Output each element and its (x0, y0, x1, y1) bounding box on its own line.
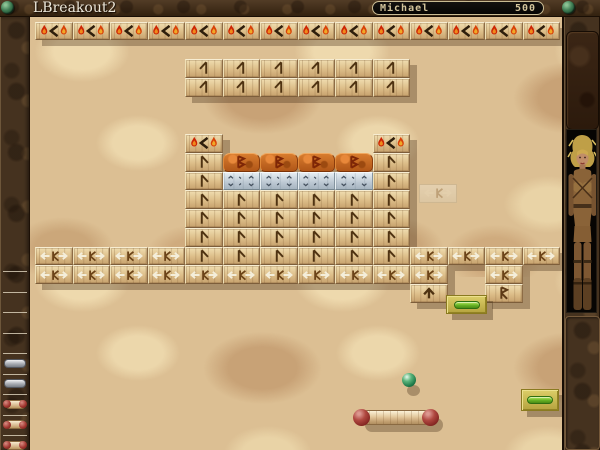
right-arrow-icon (442, 190, 450, 196)
brick-rune-laguz (260, 190, 298, 209)
brick-rune-laguz (260, 209, 298, 228)
chevron-left-icon (51, 26, 58, 36)
blonde-warrior-woman-art (567, 130, 597, 313)
rune-laguz-icon (389, 156, 395, 168)
flame-icon (378, 137, 384, 147)
chevron-left-icon (463, 26, 470, 36)
green-capsule-icon (527, 396, 553, 404)
left-arrow-icon (491, 253, 499, 259)
paddle-life-icon (3, 441, 27, 450)
item-slot (3, 292, 27, 312)
flame-icon (511, 25, 517, 35)
brick-rune-lambda (223, 59, 261, 78)
brick-ice (335, 172, 373, 191)
item-slot (3, 312, 27, 332)
score-panel: Michael 500 (372, 1, 544, 15)
brick-rune-laguz (298, 247, 336, 266)
rune-raido-icon (501, 288, 507, 300)
paddle-end-cap (353, 409, 370, 426)
score-value: 500 (515, 3, 536, 14)
chevron-left-icon (313, 26, 320, 36)
left-arrow-icon (425, 190, 433, 196)
brick-rune-laguz (335, 209, 373, 228)
rune-laguz-icon (352, 194, 358, 206)
rune-laguz-icon (277, 250, 283, 262)
brick-rune-lambda (223, 78, 261, 97)
up-arrow-icon (424, 289, 434, 298)
fading-brick (419, 184, 457, 203)
left-arrow-icon (229, 272, 237, 278)
silver-capsule-icon (4, 379, 26, 388)
rune-lambda-icon (275, 63, 281, 75)
brick-flame-chevron (373, 134, 411, 153)
brick-rune-laguz (185, 209, 223, 228)
ice-marks-icon (229, 176, 254, 185)
flame-icon (398, 137, 404, 147)
rune-k-icon (240, 270, 245, 279)
rune-k-icon (203, 270, 208, 279)
chevron-left-icon (201, 138, 208, 148)
rune-berkanan-icon (314, 156, 320, 168)
rune-k-icon (53, 251, 58, 260)
rune-laguz-icon (314, 231, 320, 243)
brick-rune-laguz (223, 190, 261, 209)
right-arrow-icon (433, 272, 441, 278)
brick-rune-laguz (185, 190, 223, 209)
right-arrow-icon (133, 272, 141, 278)
chevron-left-icon (538, 26, 545, 36)
flame-icon (191, 25, 197, 35)
brick-arrows-left-right-rune-k (35, 247, 73, 266)
item-slot (3, 271, 27, 291)
rune-berkanan-icon (276, 156, 282, 168)
rune-laguz-icon (239, 231, 245, 243)
rune-laguz-icon (389, 175, 395, 187)
rune-lambda-icon (312, 63, 318, 75)
brick-arrows-left-right-rune-k (298, 265, 336, 284)
rune-k-icon (390, 270, 395, 279)
rune-berkanan-icon (351, 156, 357, 168)
flame-icon (378, 25, 384, 35)
right-arrow-icon (283, 272, 291, 278)
rune-lambda-icon (350, 81, 356, 93)
rune-laguz-icon (239, 213, 245, 225)
leather-panel (565, 316, 600, 450)
rune-laguz-icon (202, 156, 208, 168)
rune-lambda-icon (237, 81, 243, 93)
rune-k-icon (503, 270, 508, 279)
brick-flame-chevron (73, 22, 111, 41)
left-arrow-icon (191, 272, 199, 278)
right-arrow-icon (358, 272, 366, 278)
rune-lambda-icon (387, 81, 393, 93)
brick-rune-laguz (298, 190, 336, 209)
brick-flame-chevron (335, 22, 373, 41)
brick-rune-lambda (298, 78, 336, 97)
brick-arrows-left-right-rune-k (485, 247, 523, 266)
brick-flame-chevron (35, 22, 73, 41)
brick-arrows-left-right-rune-k (73, 265, 111, 284)
brick-flame-chevron (410, 22, 448, 41)
rune-k-icon (503, 251, 508, 260)
item-slot (3, 353, 27, 373)
brick-rune-laguz (373, 172, 411, 191)
rune-laguz-icon (389, 194, 395, 206)
right-arrow-icon (208, 272, 216, 278)
rune-laguz-icon (202, 250, 208, 262)
left-arrow-icon (79, 253, 87, 259)
flame-icon (153, 25, 159, 35)
left-arrow-icon (266, 272, 274, 278)
rune-laguz-icon (389, 213, 395, 225)
rune-laguz-icon (277, 194, 283, 206)
brick-rune-laguz (185, 172, 223, 191)
rune-lambda-icon (275, 81, 281, 93)
paddle-life-icon (3, 400, 27, 409)
rune-berkanan-icon (239, 156, 245, 168)
brick-copper-rune-berkanan (298, 153, 336, 172)
left-arrow-icon (116, 272, 124, 278)
bonus-tile (446, 295, 487, 314)
brick-arrows-left-right-rune-k (35, 265, 73, 284)
flame-icon (323, 25, 329, 35)
flame-icon (416, 25, 422, 35)
rune-laguz-icon (314, 250, 320, 262)
right-sidebar (562, 17, 600, 450)
brick-arrows-left-right-rune-k (148, 247, 186, 266)
play-field[interactable] (30, 17, 562, 450)
brick-rune-laguz (373, 153, 411, 172)
left-sidebar (0, 17, 30, 450)
left-arrow-icon (379, 272, 387, 278)
brick-rune-laguz (373, 209, 411, 228)
chevron-left-icon (126, 26, 133, 36)
rune-lambda-icon (350, 63, 356, 75)
brick-rune-laguz (260, 247, 298, 266)
flame-icon (528, 25, 534, 35)
left-arrow-icon (116, 253, 124, 259)
brick-copper-rune-berkanan (260, 153, 298, 172)
gadget-panel (566, 31, 599, 130)
flame-icon (436, 25, 442, 35)
title-bar: LBreakout2 Michael 500 (0, 0, 600, 17)
chevron-left-icon (501, 26, 508, 36)
brick-arrows-left-right-rune-k (110, 265, 148, 284)
flame-icon (191, 137, 197, 147)
flame-icon (61, 25, 67, 35)
silver-capsule-icon (4, 359, 26, 368)
brick-flame-chevron (485, 22, 523, 41)
flame-icon (361, 25, 367, 35)
rune-k-icon (278, 270, 283, 279)
brick-arrows-left-right-rune-k (223, 265, 261, 284)
flame-icon (173, 25, 179, 35)
right-arrow-icon (508, 272, 516, 278)
left-arrow-icon (79, 272, 87, 278)
rune-k-icon (540, 251, 545, 260)
rune-laguz-icon (202, 213, 208, 225)
flame-icon (78, 25, 84, 35)
bonus-tile (521, 389, 559, 411)
brick-rune-laguz (185, 153, 223, 172)
item-slot (3, 415, 27, 435)
flame-icon (211, 137, 217, 147)
rune-k-icon (353, 270, 358, 279)
rune-laguz-icon (314, 213, 320, 225)
ice-marks-icon (341, 176, 366, 185)
chevron-left-icon (276, 26, 283, 36)
right-arrow-icon (396, 272, 404, 278)
flame-icon (286, 25, 292, 35)
brick-arrows-left-right-rune-k (410, 247, 448, 266)
flame-icon (116, 25, 122, 35)
chevron-left-icon (163, 26, 170, 36)
brick-rune-laguz (185, 247, 223, 266)
brick-arrow-up (410, 284, 448, 303)
flame-icon (491, 25, 497, 35)
brick-copper-rune-berkanan (335, 153, 373, 172)
right-arrow-icon (133, 253, 141, 259)
rune-k-icon (128, 251, 133, 260)
brick-flame-chevron (260, 22, 298, 41)
brick-rune-laguz (298, 228, 336, 247)
flame-icon (228, 25, 234, 35)
rune-k-icon (90, 251, 95, 260)
paddle[interactable] (353, 409, 439, 427)
rune-k-icon (165, 270, 170, 279)
right-arrow-icon (171, 253, 179, 259)
left-arrow-icon (491, 272, 499, 278)
brick-ice (223, 172, 261, 191)
rune-laguz-icon (389, 250, 395, 262)
right-arrow-icon (246, 272, 254, 278)
left-arrow-icon (41, 272, 49, 278)
right-arrow-icon (58, 272, 66, 278)
brick-rune-laguz (335, 190, 373, 209)
brick-flame-chevron (523, 22, 561, 41)
left-arrow-icon (416, 253, 424, 259)
brick-flame-chevron (298, 22, 336, 41)
brick-flame-chevron (448, 22, 486, 41)
brick-rune-laguz (373, 190, 411, 209)
window-title: LBreakout2 (33, 0, 116, 17)
left-arrow-icon (154, 272, 162, 278)
left-arrow-icon (41, 253, 49, 259)
brick-arrows-left-right-rune-k (110, 247, 148, 266)
rune-lambda-icon (312, 81, 318, 93)
brick-ice (260, 172, 298, 191)
rune-lambda-icon (387, 63, 393, 75)
brick-rune-laguz (223, 247, 261, 266)
brick-rune-laguz (223, 209, 261, 228)
rune-lambda-icon (200, 81, 206, 93)
rune-laguz-icon (202, 231, 208, 243)
chevron-left-icon (201, 26, 208, 36)
rune-laguz-icon (239, 250, 245, 262)
ice-marks-icon (304, 176, 329, 185)
brick-rune-laguz (335, 228, 373, 247)
brick-flame-chevron (223, 22, 261, 41)
brick-arrows-left-right-rune-k (485, 265, 523, 284)
left-arrow-icon (154, 253, 162, 259)
flame-icon (248, 25, 254, 35)
character-portrait (566, 129, 597, 313)
chevron-left-icon (388, 138, 395, 148)
right-arrow-icon (171, 272, 179, 278)
rune-laguz-icon (239, 194, 245, 206)
brick-flame-chevron (185, 134, 223, 153)
ball (402, 373, 416, 387)
brick-rune-lambda (260, 78, 298, 97)
chevron-left-icon (351, 26, 358, 36)
green-capsule-icon (454, 301, 480, 309)
lbreakout2-window: LBreakout2 Michael 500 (0, 0, 600, 450)
rune-laguz-icon (277, 231, 283, 243)
rune-laguz-icon (202, 194, 208, 206)
brick-rune-lambda (373, 78, 411, 97)
paddle-end-cap (422, 409, 439, 426)
item-slot (3, 394, 27, 414)
left-arrow-icon (529, 253, 537, 259)
rune-laguz-icon (314, 194, 320, 206)
chevron-left-icon (88, 26, 95, 36)
brick-rune-lambda (260, 59, 298, 78)
brick-arrows-left-right-rune-k (373, 265, 411, 284)
paddle-body (361, 410, 431, 425)
rune-k-icon (165, 251, 170, 260)
paddle-life-icon (3, 420, 27, 429)
rune-laguz-icon (202, 175, 208, 187)
ice-marks-icon (266, 176, 291, 185)
brick-arrows-left-right-rune-k (260, 265, 298, 284)
chevron-left-icon (388, 26, 395, 36)
brick-rune-laguz (373, 247, 411, 266)
left-arrow-icon (416, 272, 424, 278)
left-arrow-icon (454, 253, 462, 259)
brick-rune-laguz (373, 228, 411, 247)
brick-rune-laguz (185, 228, 223, 247)
right-arrow-icon (321, 272, 329, 278)
rune-lambda-icon (200, 63, 206, 75)
brick-arrows-left-right-rune-k (523, 247, 561, 266)
rune-laguz-icon (352, 231, 358, 243)
brick-arrows-left-right-rune-k (73, 247, 111, 266)
flame-icon (303, 25, 309, 35)
right-arrow-icon (58, 253, 66, 259)
rune-laguz-icon (389, 231, 395, 243)
brick-rune-raido (485, 284, 523, 303)
brick-flame-chevron (110, 22, 148, 41)
flame-icon (41, 25, 47, 35)
brick-arrows-left-right-rune-k (148, 265, 186, 284)
brick-flame-chevron (185, 22, 223, 41)
rune-k-icon (90, 270, 95, 279)
brick-rune-laguz (335, 247, 373, 266)
bolt-icon (1, 1, 14, 14)
brick-rune-lambda (373, 59, 411, 78)
rune-k-icon (428, 270, 433, 279)
flame-icon (136, 25, 142, 35)
item-slot (3, 374, 27, 394)
brick-arrows-left-right-rune-k (185, 265, 223, 284)
rune-lambda-icon (237, 63, 243, 75)
brick-rune-lambda (298, 59, 336, 78)
rune-k-icon (465, 251, 470, 260)
brick-arrows-left-right-rune-k (410, 265, 448, 284)
brick-rune-laguz (223, 228, 261, 247)
flame-icon (453, 25, 459, 35)
right-arrow-icon (433, 253, 441, 259)
rune-laguz-icon (277, 213, 283, 225)
item-slot (3, 435, 27, 450)
brick-rune-lambda (185, 78, 223, 97)
right-arrow-icon (508, 253, 516, 259)
brick-rune-laguz (298, 209, 336, 228)
rune-k-icon (128, 270, 133, 279)
rune-k-icon (428, 251, 433, 260)
right-arrow-icon (96, 272, 104, 278)
left-arrow-icon (341, 272, 349, 278)
brick-copper-rune-berkanan (223, 153, 261, 172)
left-arrow-icon (304, 272, 312, 278)
flame-icon (398, 25, 404, 35)
rune-k-icon (437, 189, 442, 198)
brick-arrows-left-right-rune-k (335, 265, 373, 284)
brick-rune-laguz (260, 228, 298, 247)
brick-flame-chevron (148, 22, 186, 41)
chevron-left-icon (426, 26, 433, 36)
item-slot (3, 333, 27, 353)
item-slot-list (0, 271, 30, 450)
brick-rune-lambda (335, 78, 373, 97)
brick-rune-lambda (335, 59, 373, 78)
brick-ice (298, 172, 336, 191)
rune-laguz-icon (352, 250, 358, 262)
flame-icon (266, 25, 272, 35)
rune-laguz-icon (352, 213, 358, 225)
flame-icon (211, 25, 217, 35)
right-arrow-icon (546, 253, 554, 259)
flame-icon (548, 25, 554, 35)
player-name: Michael (380, 3, 429, 14)
bolt-icon (562, 1, 575, 14)
flame-icon (473, 25, 479, 35)
right-arrow-icon (471, 253, 479, 259)
brick-flame-chevron (373, 22, 411, 41)
brick-rune-lambda (185, 59, 223, 78)
rune-k-icon (315, 270, 320, 279)
brick-arrows-left-right-rune-k (448, 247, 486, 266)
rune-k-icon (53, 270, 58, 279)
flame-icon (98, 25, 104, 35)
right-arrow-icon (96, 253, 104, 259)
chevron-left-icon (238, 26, 245, 36)
flame-icon (341, 25, 347, 35)
